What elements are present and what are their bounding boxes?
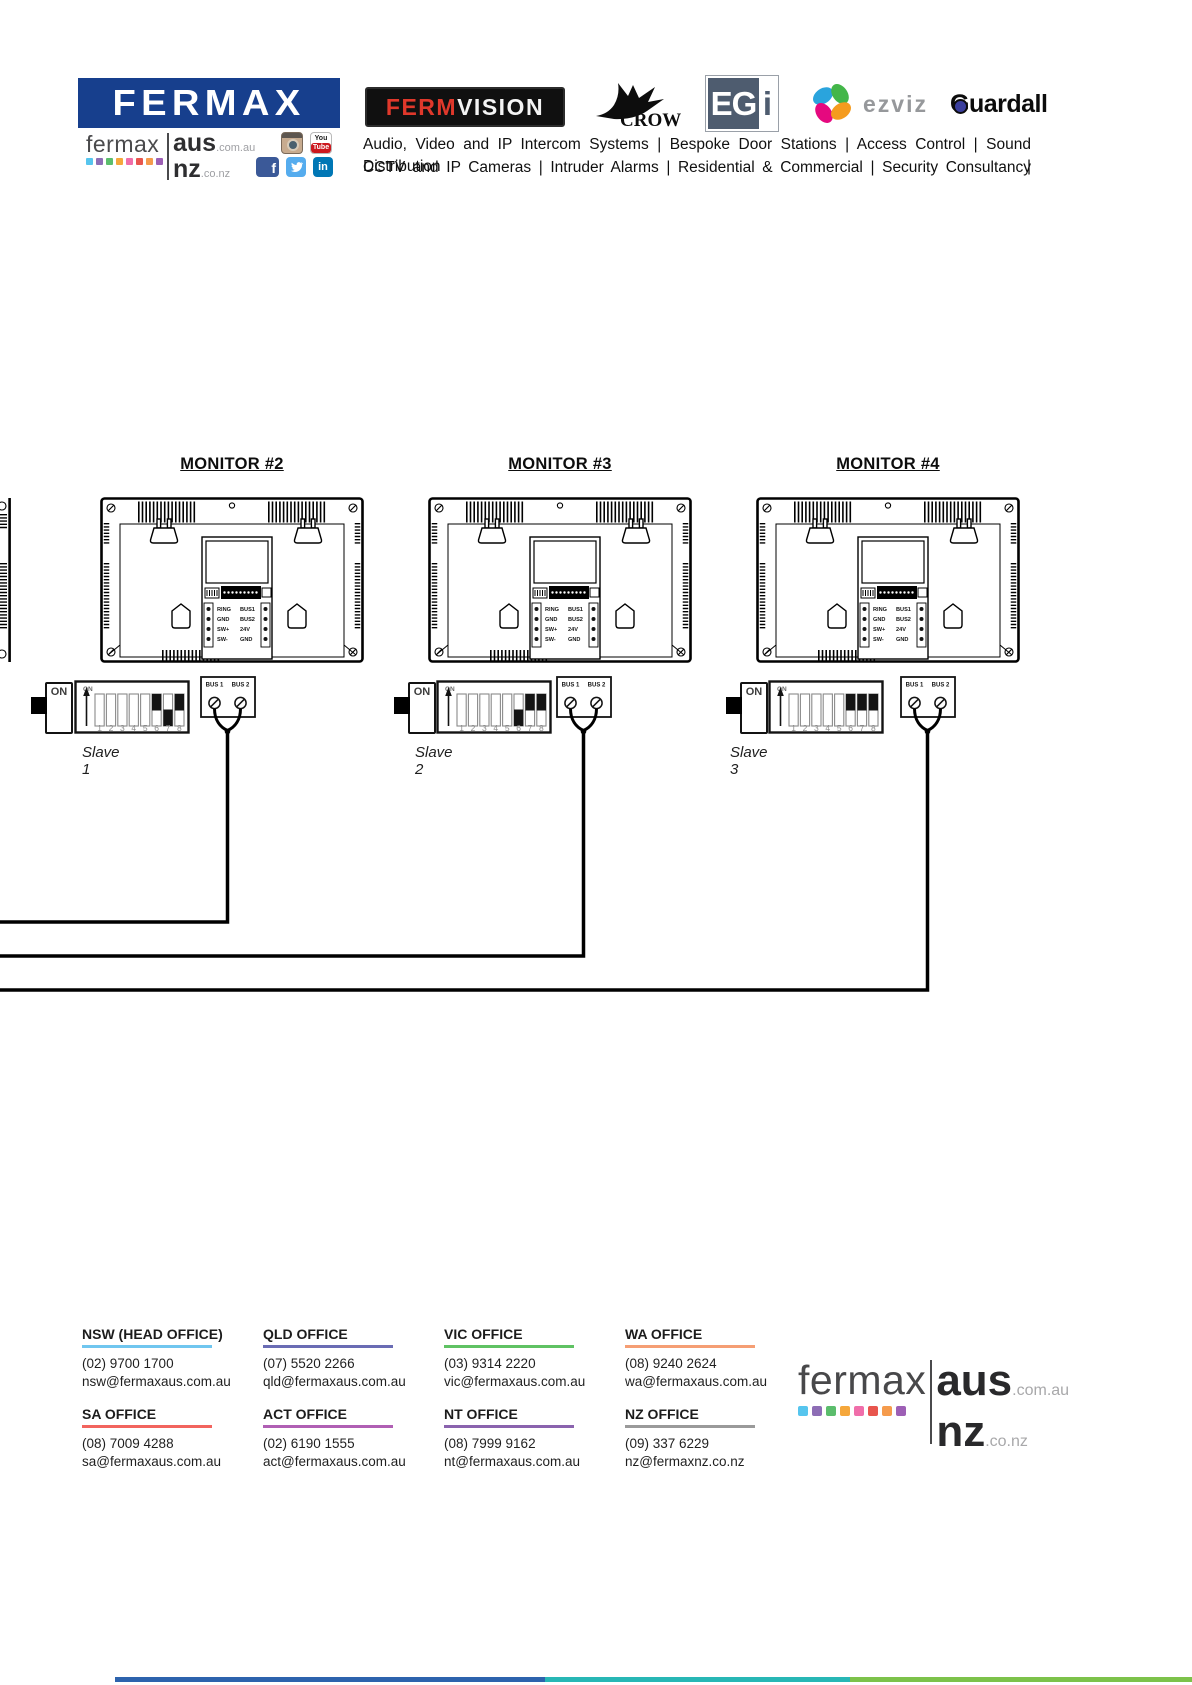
nz-domain: nz — [936, 1407, 985, 1456]
bus2-label: BUS 2 — [588, 683, 606, 689]
power-switch[interactable]: ON — [740, 682, 768, 734]
svg-text:3: 3 — [120, 723, 125, 733]
color-square — [840, 1406, 850, 1416]
power-switch-on-label: ON — [742, 686, 766, 698]
bus-terminal-box: BUS 1 BUS 2 — [556, 676, 612, 738]
svg-text:5: 5 — [143, 723, 148, 733]
dip-switch-block[interactable]: ON 12345678 — [74, 680, 190, 734]
aus-domain: aus — [173, 129, 216, 157]
fermax-logo-text: FERMAX — [113, 82, 306, 124]
ezviz-logo: ezviz — [810, 82, 928, 126]
slave-label: Slave 3 — [730, 744, 768, 778]
fermaxaus-color-squares — [798, 1406, 926, 1416]
office-name: SA OFFICE — [82, 1406, 212, 1428]
office-phone: (02) 9700 1700 — [82, 1355, 263, 1373]
office-name: NZ OFFICE — [625, 1406, 755, 1428]
bottom-bar-segment — [850, 1677, 1192, 1682]
office-phone: (08) 9240 2624 — [625, 1355, 806, 1373]
office-contact-block: SA OFFICE (08) 7009 4288 sa@fermaxaus.co… — [82, 1406, 263, 1471]
tagline-line-2: CCTV and IP Cameras | Intruder Alarms | … — [363, 157, 1031, 179]
color-square — [96, 158, 103, 165]
monitor-rear-diagram: RING GND SW+ SW- BUS1 BUS2 24V GND — [428, 497, 692, 663]
social-icons-row-2: f in — [256, 157, 333, 177]
bottom-bar-segment — [545, 1677, 850, 1682]
bus-terminal-box: BUS 1 BUS 2 — [900, 676, 956, 738]
svg-text:4: 4 — [493, 723, 498, 733]
office-email[interactable]: act@fermaxaus.com.au — [263, 1453, 444, 1471]
office-email[interactable]: sa@fermaxaus.com.au — [82, 1453, 263, 1471]
office-email[interactable]: vic@fermaxaus.com.au — [444, 1373, 625, 1391]
svg-text:BUS2: BUS2 — [568, 617, 583, 623]
connector-panel: RING GND SW+ SW- BUS1 BUS2 24V GND — [858, 537, 928, 659]
svg-text:7: 7 — [860, 723, 865, 733]
office-phone: (03) 9314 2220 — [444, 1355, 625, 1373]
fermaxaus-wordmark: fermax — [798, 1360, 926, 1400]
monitor-title: MONITOR #2 — [100, 455, 364, 474]
offices-grid: NSW (HEAD OFFICE) (02) 9700 1700 nsw@fer… — [82, 1326, 806, 1471]
instagram-icon[interactable] — [281, 132, 303, 154]
svg-text:RING: RING — [545, 607, 559, 613]
nz-tld: .co.nz — [201, 168, 230, 180]
office-contact-block: WA OFFICE (08) 9240 2624 wa@fermaxaus.co… — [625, 1326, 806, 1391]
office-contact-block: NSW (HEAD OFFICE) (02) 9700 1700 nsw@fer… — [82, 1326, 263, 1391]
office-phone: (02) 6190 1555 — [263, 1435, 444, 1453]
office-name: ACT OFFICE — [263, 1406, 393, 1428]
svg-text:5: 5 — [505, 723, 510, 733]
svg-text:8: 8 — [539, 723, 544, 733]
office-contact-block: NT OFFICE (08) 7999 9162 nt@fermaxaus.co… — [444, 1406, 625, 1471]
office-phone: (08) 7999 9162 — [444, 1435, 625, 1453]
svg-text:GND: GND — [240, 637, 252, 643]
bus1-label: BUS 1 — [562, 683, 580, 689]
slave-label: Slave 2 — [415, 744, 453, 778]
monitor-title: MONITOR #3 — [428, 455, 692, 474]
office-contact-block: QLD OFFICE (07) 5520 2266 qld@fermaxaus.… — [263, 1326, 444, 1391]
twitter-icon[interactable] — [286, 157, 306, 177]
svg-text:3: 3 — [814, 723, 819, 733]
bus1-label: BUS 1 — [906, 683, 924, 689]
office-phone: (08) 7009 4288 — [82, 1435, 263, 1453]
power-switch[interactable]: ON — [408, 682, 436, 734]
fermvision-logo: FERMVISION — [365, 87, 565, 127]
svg-text:8: 8 — [871, 723, 876, 733]
svg-text:GND: GND — [568, 637, 580, 643]
svg-text:SW-: SW- — [217, 637, 228, 643]
connector-panel: RING GND SW+ SW- BUS1 BUS2 24V GND — [530, 537, 600, 659]
svg-text:2: 2 — [471, 723, 476, 733]
fermaxaus-color-squares — [86, 158, 163, 165]
power-switch-on-label: ON — [47, 686, 71, 698]
bus2-label: BUS 2 — [232, 683, 250, 689]
svg-text:GND: GND — [896, 637, 908, 643]
nz-tld: .co.nz — [985, 1433, 1028, 1450]
office-email[interactable]: qld@fermaxaus.com.au — [263, 1373, 444, 1391]
svg-text:SW+: SW+ — [545, 627, 558, 633]
youtube-icon[interactable]: You Tube — [310, 132, 332, 154]
svg-text:6: 6 — [516, 723, 521, 733]
color-square — [126, 158, 133, 165]
bus-wire-slave-3 — [0, 731, 928, 990]
youtube-icon-text-top: You — [315, 134, 328, 143]
color-square — [86, 158, 93, 165]
crow-logo-text: CROW — [620, 110, 681, 130]
svg-text:GND: GND — [873, 617, 885, 623]
office-name: WA OFFICE — [625, 1326, 755, 1348]
svg-text:1: 1 — [791, 723, 796, 733]
linkedin-icon[interactable]: in — [313, 157, 333, 177]
dip-switch-block[interactable]: ON 12345678 — [768, 680, 884, 734]
bus-terminal-box: BUS 1 BUS 2 — [200, 676, 256, 738]
color-square — [826, 1406, 836, 1416]
svg-text:GND: GND — [217, 617, 229, 623]
svg-text:RING: RING — [217, 607, 231, 613]
ezviz-flower-icon — [810, 82, 854, 126]
svg-text:6: 6 — [154, 723, 159, 733]
color-square — [156, 158, 163, 165]
svg-text:6: 6 — [848, 723, 853, 733]
office-name: NT OFFICE — [444, 1406, 574, 1428]
power-switch[interactable]: ON — [45, 682, 73, 734]
fermaxaus-logo-footer: fermax aus.com.au nz.co.nz — [798, 1360, 1069, 1462]
color-square — [116, 158, 123, 165]
svg-text:SW+: SW+ — [873, 627, 886, 633]
bus2-label: BUS 2 — [932, 683, 950, 689]
svg-text:5: 5 — [837, 723, 842, 733]
color-square — [854, 1406, 864, 1416]
color-square — [136, 158, 143, 165]
monitor-1-edge-sliver — [0, 497, 11, 663]
power-switch-handle[interactable] — [394, 697, 410, 714]
monitor-rear-diagram: RING GND SW+ SW- BUS1 BUS2 24V GND — [100, 497, 364, 663]
office-phone: (09) 337 6229 — [625, 1435, 806, 1453]
svg-text:4: 4 — [825, 723, 830, 733]
office-name: QLD OFFICE — [263, 1326, 393, 1348]
fermax-logo: FERMAX — [78, 78, 340, 128]
logo-divider — [167, 133, 169, 180]
power-switch-handle[interactable] — [726, 697, 742, 714]
dip-switch-block[interactable]: ON 12345678 — [436, 680, 552, 734]
svg-text:24V: 24V — [896, 627, 906, 633]
document-page: FERMAX fermax aus.com.au nz.co.nz You Tu… — [0, 0, 1192, 1685]
crow-logo: CROW — [592, 78, 688, 130]
color-square — [798, 1406, 808, 1416]
svg-text:BUS1: BUS1 — [240, 607, 255, 613]
egi-logo: EG i — [705, 75, 779, 132]
color-square — [812, 1406, 822, 1416]
svg-text:2: 2 — [109, 723, 114, 733]
svg-text:24V: 24V — [568, 627, 578, 633]
bottom-bar-segment — [115, 1677, 545, 1682]
youtube-icon-text-bottom: Tube — [311, 143, 331, 153]
office-email[interactable]: nsw@fermaxaus.com.au — [82, 1373, 263, 1391]
office-email[interactable]: nt@fermaxaus.com.au — [444, 1453, 625, 1471]
svg-text:4: 4 — [131, 723, 136, 733]
svg-text:7: 7 — [166, 723, 171, 733]
svg-text:24V: 24V — [240, 627, 250, 633]
color-square — [896, 1406, 906, 1416]
office-name: NSW (HEAD OFFICE) — [82, 1326, 212, 1348]
office-contact-block: VIC OFFICE (03) 9314 2220 vic@fermaxaus.… — [444, 1326, 625, 1391]
svg-text:SW+: SW+ — [217, 627, 230, 633]
svg-text:SW-: SW- — [545, 637, 556, 643]
svg-text:3: 3 — [482, 723, 487, 733]
svg-text:1: 1 — [97, 723, 102, 733]
logo-divider — [930, 1360, 932, 1444]
svg-text:1: 1 — [459, 723, 464, 733]
monitor-rear-diagram: RING GND SW+ SW- BUS1 BUS2 24V GND — [756, 497, 1020, 663]
bus1-label: BUS 1 — [206, 683, 224, 689]
svg-text:BUS2: BUS2 — [240, 617, 255, 623]
svg-text:8: 8 — [177, 723, 182, 733]
aus-tld: .com.au — [1012, 1382, 1069, 1399]
aus-tld: .com.au — [216, 142, 255, 154]
social-icons-row-1: You Tube — [281, 132, 332, 154]
office-contact-block: ACT OFFICE (02) 6190 1555 act@fermaxaus.… — [263, 1406, 444, 1471]
fermaxaus-logo-small: fermax aus.com.au nz.co.nz — [86, 133, 255, 185]
egi-logo-i: i — [759, 78, 776, 129]
svg-text:BUS1: BUS1 — [896, 607, 911, 613]
color-square — [868, 1406, 878, 1416]
office-phone: (07) 5520 2266 — [263, 1355, 444, 1373]
svg-text:BUS2: BUS2 — [896, 617, 911, 623]
slave-label: Slave 1 — [82, 744, 120, 778]
power-switch-handle[interactable] — [31, 697, 47, 714]
nz-domain: nz — [173, 155, 201, 183]
color-square — [882, 1406, 892, 1416]
fermvision-logo-vision: VISION — [457, 94, 544, 121]
color-square — [146, 158, 153, 165]
ezviz-logo-text: ezviz — [863, 91, 928, 118]
svg-text:BUS1: BUS1 — [568, 607, 583, 613]
facebook-icon[interactable]: f — [256, 157, 279, 177]
svg-text:GND: GND — [545, 617, 557, 623]
office-name: VIC OFFICE — [444, 1326, 574, 1348]
egi-logo-eg: EG — [708, 78, 759, 129]
office-email[interactable]: wa@fermaxaus.com.au — [625, 1373, 806, 1391]
connector-panel: RING GND SW+ SW- BUS1 BUS2 24V GND — [202, 537, 272, 659]
color-square — [106, 158, 113, 165]
svg-text:SW-: SW- — [873, 637, 884, 643]
svg-text:7: 7 — [528, 723, 533, 733]
fermaxaus-wordmark: fermax — [86, 133, 163, 155]
power-switch-on-label: ON — [410, 686, 434, 698]
svg-text:RING: RING — [873, 607, 887, 613]
svg-text:2: 2 — [803, 723, 808, 733]
monitor-title: MONITOR #4 — [756, 455, 1020, 474]
aus-domain: aus — [936, 1356, 1012, 1405]
office-email[interactable]: nz@fermaxnz.co.nz — [625, 1453, 806, 1471]
guardall-logo: Guardall — [950, 90, 1047, 119]
fermvision-logo-ferm: FERM — [386, 94, 457, 121]
office-contact-block: NZ OFFICE (09) 337 6229 nz@fermaxnz.co.n… — [625, 1406, 806, 1471]
